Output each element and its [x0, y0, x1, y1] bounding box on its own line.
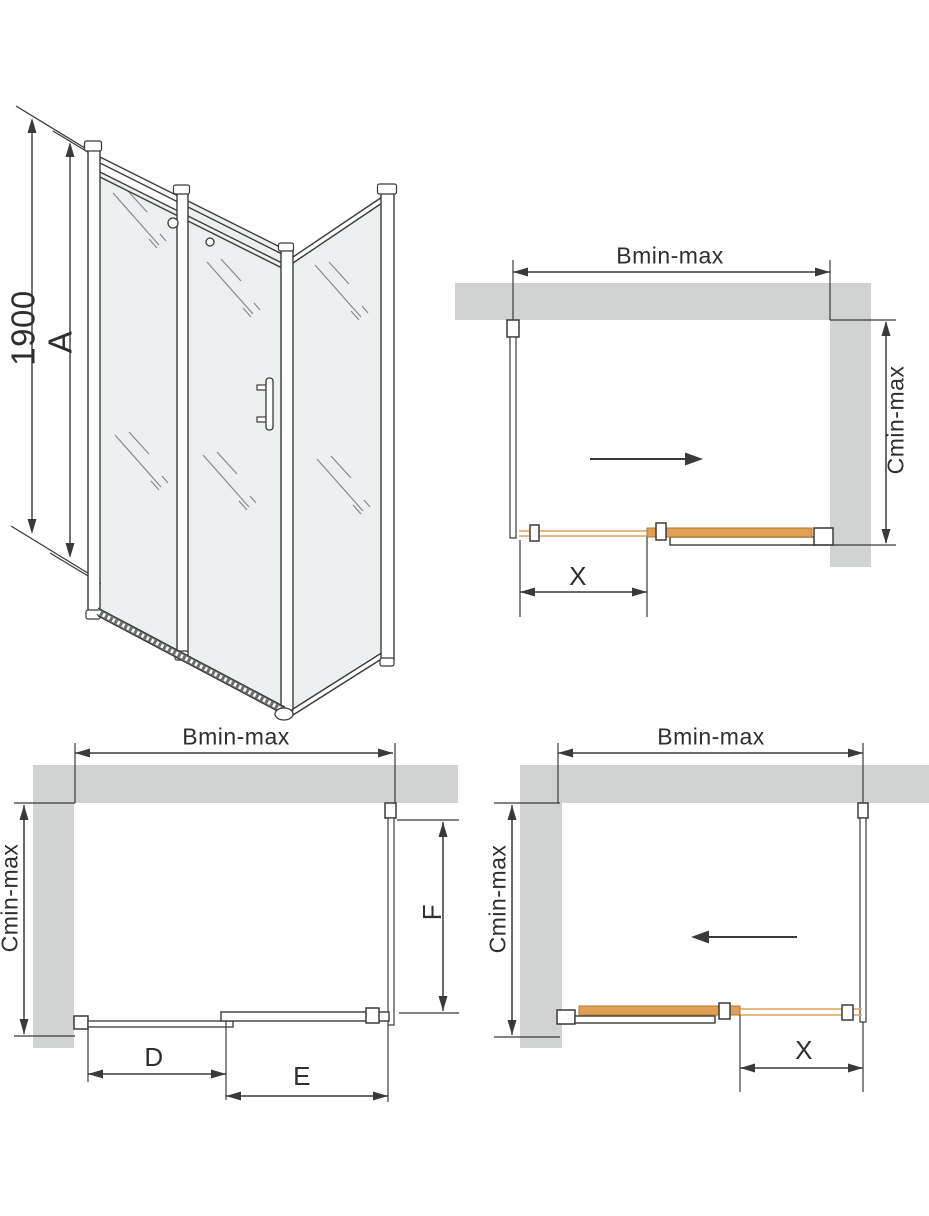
bl-side-panel-label: F — [419, 904, 445, 920]
slide-direction-left-arrow-icon — [691, 931, 797, 944]
front-assembly — [74, 1008, 389, 1100]
center-post-cap — [174, 185, 190, 194]
fixed-panel — [670, 537, 815, 545]
plan-bottom-left — [0, 720, 470, 1130]
isometric-view — [0, 80, 460, 760]
side-panel — [510, 337, 516, 538]
corner-foot — [275, 708, 293, 720]
corner-post — [281, 250, 293, 710]
br-width-label: Bmin-max — [657, 726, 765, 749]
fixed-glass-panel — [101, 173, 178, 654]
corner-post-cap — [279, 243, 294, 251]
door-bracket — [366, 1008, 379, 1023]
plan-bottom-right — [460, 720, 929, 1130]
sliding-door-glass — [188, 201, 282, 708]
wall-profile-bracket — [557, 1010, 575, 1024]
door-bracket — [656, 523, 666, 540]
side-panel — [388, 818, 394, 1025]
fixed-panel — [575, 1016, 715, 1023]
br-door-travel-label: X — [795, 1037, 813, 1063]
left-profile-cap — [85, 141, 102, 151]
wall-profile-bracket — [507, 320, 519, 337]
side-profile-foot — [380, 658, 394, 666]
left-wall-profile — [88, 150, 100, 615]
iso-outer-height-label: 1900 — [7, 290, 40, 365]
wall-right — [830, 320, 871, 567]
fixed-panel — [88, 1021, 233, 1027]
bl-depth-label: Cmin-max — [0, 844, 22, 953]
shower-enclosure-diagram-sheet: 1900 A Bmin-max Cmin-max X Bmin-max Cmin… — [0, 0, 929, 1216]
iso-inner-height-label: A — [44, 331, 77, 354]
center-post — [177, 192, 188, 655]
plan-bottom-left-drawing — [0, 720, 470, 1130]
wall-top — [33, 765, 458, 803]
sliding-door — [221, 1012, 389, 1021]
wall-top — [455, 283, 871, 320]
wall-left — [520, 803, 562, 1048]
slide-direction-right-arrow-icon — [590, 453, 703, 466]
sliding-door — [647, 528, 812, 537]
door-bracket — [719, 1003, 730, 1019]
side-panel — [860, 818, 866, 1022]
side-panel-end-profile — [381, 192, 394, 660]
wall-profile-bracket — [858, 803, 868, 818]
bl-fixed-segment-label: D — [144, 1044, 163, 1070]
isometric-view-drawing — [0, 80, 460, 760]
tr-depth-label: Cmin-max — [885, 366, 908, 475]
track-bracket — [842, 1005, 853, 1020]
plan-bottom-right-drawing — [460, 720, 929, 1130]
front-assembly — [557, 1003, 862, 1024]
wall-profile-bracket — [74, 1016, 88, 1029]
door-roller-icon — [168, 218, 178, 228]
bl-width-label: Bmin-max — [182, 726, 290, 749]
side-profile-cap — [378, 184, 397, 194]
bl-door-segment-label: E — [293, 1063, 311, 1089]
wall-profile-bracket — [385, 803, 396, 818]
door-roller-icon — [206, 238, 214, 246]
wall-left — [33, 803, 74, 1048]
wall-top — [520, 765, 929, 803]
plan-top-right — [440, 240, 929, 630]
tr-door-travel-label: X — [569, 563, 587, 589]
plan-top-right-drawing — [440, 240, 929, 630]
sliding-door — [579, 1006, 740, 1015]
wall-profile-bracket — [814, 528, 833, 545]
br-depth-label: Cmin-max — [487, 845, 510, 954]
front-assembly — [519, 523, 833, 545]
track-bracket — [530, 525, 539, 541]
glass-panels — [101, 173, 381, 709]
tr-width-label: Bmin-max — [616, 245, 724, 268]
side-return-glass — [293, 203, 381, 709]
